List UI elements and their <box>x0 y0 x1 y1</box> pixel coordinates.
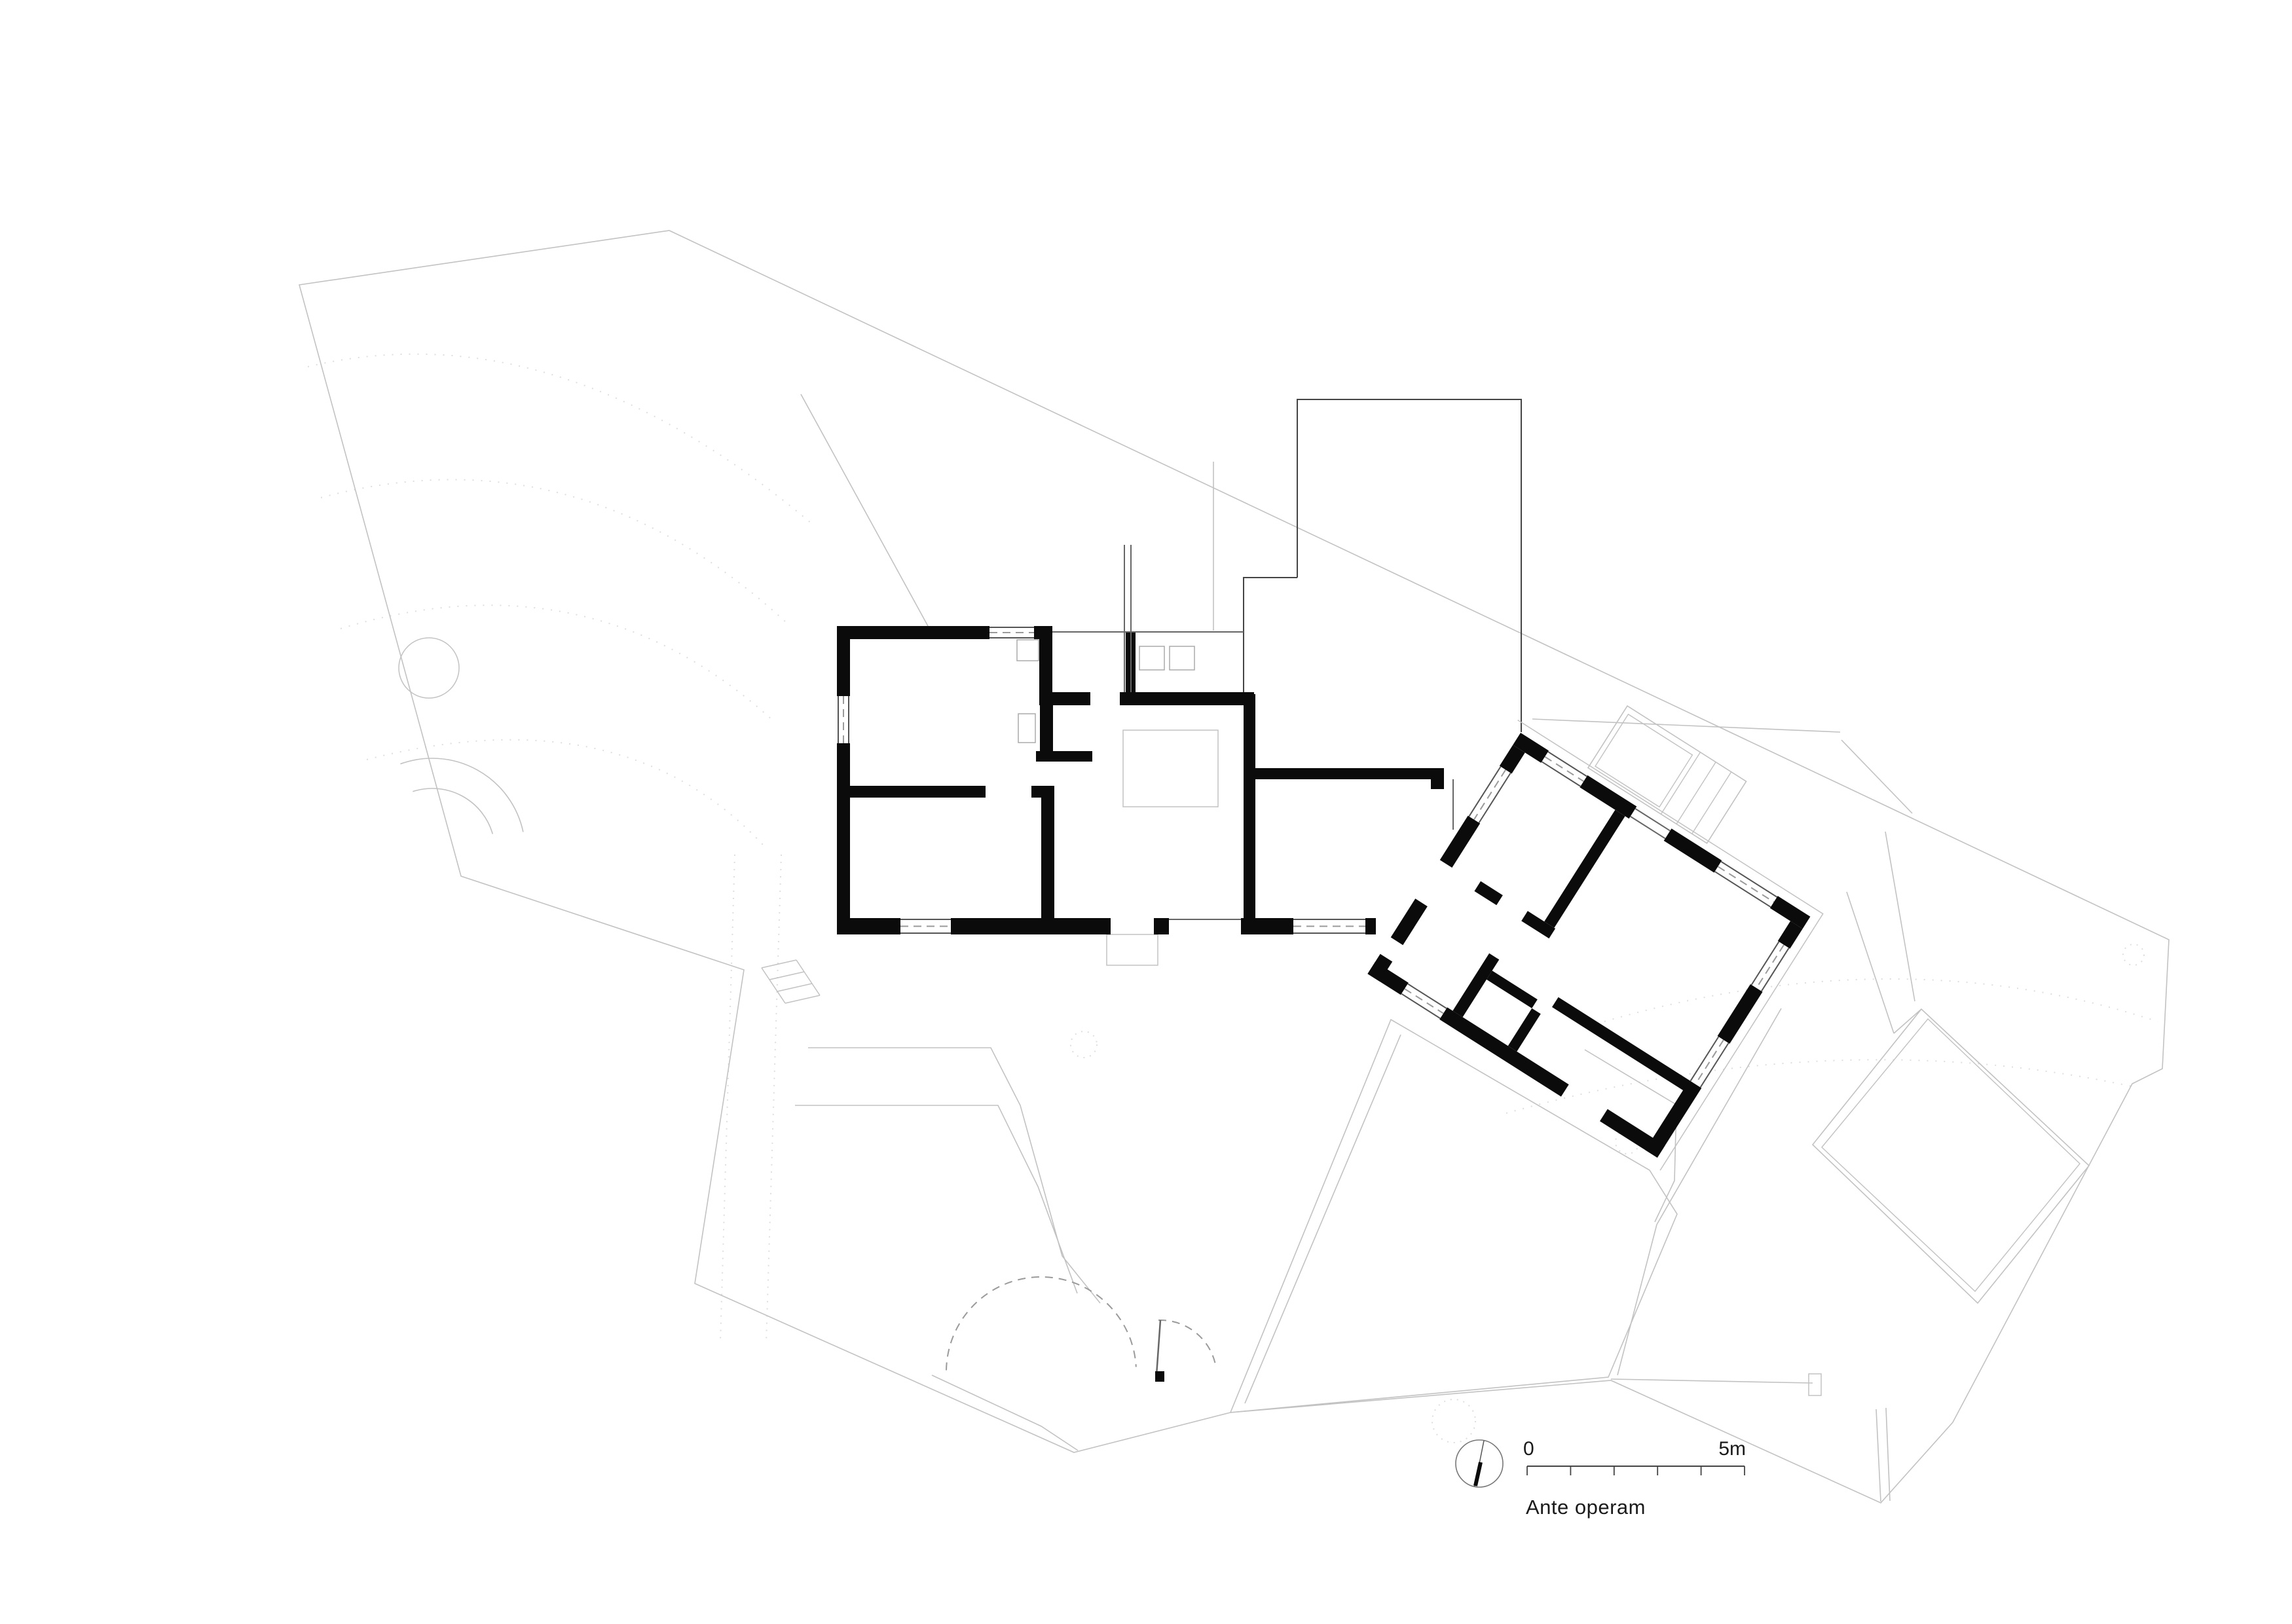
tree-circle <box>399 638 459 698</box>
paving-rect <box>1123 730 1218 807</box>
terrace-line <box>808 1048 1100 1303</box>
boundary-dotted-line <box>766 855 781 1342</box>
fixture-rect <box>1017 640 1039 661</box>
garden-stair-line <box>785 995 820 1003</box>
neighbor-layer <box>1244 399 2089 1303</box>
left-wall-segment <box>838 786 986 798</box>
neighbor-stair-tread <box>1692 772 1731 834</box>
left-wall-segment <box>1034 626 1052 639</box>
site-line <box>1611 1379 1813 1383</box>
garden-stair-line <box>762 960 796 968</box>
site-line <box>1876 1409 1881 1502</box>
gate-post <box>1155 1371 1164 1382</box>
site-line <box>1847 892 1894 1033</box>
left-wall-segment <box>1041 798 1054 918</box>
legend-text-layer: 0 5m Ante operam <box>1523 1438 1746 1519</box>
rotated-wall-segment <box>1391 898 1428 945</box>
left-wall-segment <box>837 626 989 639</box>
garden-stair-line <box>769 972 804 980</box>
right-neighbor-inner <box>1822 1019 2080 1291</box>
paving-rect <box>1809 1374 1821 1395</box>
road-arc <box>413 788 492 834</box>
gate-swing-arc <box>1158 1320 1216 1367</box>
left-wall-segment <box>1154 918 1169 934</box>
site-line <box>1886 1408 1890 1501</box>
rotated-wall-segment <box>1600 1109 1665 1158</box>
rotated-wall-segment <box>1474 881 1502 906</box>
right-neighbor-outer <box>1813 1009 2089 1303</box>
left-wall-segment <box>837 743 850 934</box>
upper-building-outline <box>1297 399 1521 732</box>
rotated-thin-line <box>1631 817 1665 839</box>
rotated-wall-segment <box>1664 828 1722 872</box>
rotated-wall-segment <box>1544 810 1625 928</box>
rotated-window-fill <box>1750 941 1790 992</box>
left-wall-segment <box>951 918 1111 934</box>
scalebar-zero-label: 0 <box>1523 1438 1534 1460</box>
site-outline <box>299 231 2169 1503</box>
floor-plan-canvas: 0 5m Ante operam <box>0 0 2292 1624</box>
left-wall-segment <box>1120 692 1254 705</box>
rotated-wall-segment <box>1440 816 1480 868</box>
rotated-wall-segment <box>1439 1007 1569 1096</box>
garden-stair-line <box>796 960 820 995</box>
left-wall-segment <box>1241 918 1293 934</box>
fixture-rect <box>1170 646 1194 670</box>
tree-circle-dotted <box>1432 1399 1475 1443</box>
garden-stair-line <box>777 984 812 991</box>
rotated-wall-segment <box>1718 984 1763 1044</box>
fixture-rect <box>1018 714 1035 743</box>
gate-swing-arc <box>946 1277 1136 1370</box>
left-wall-segment <box>1365 918 1376 934</box>
fixture-rect <box>1139 646 1164 670</box>
contour-dotted-curve <box>367 740 763 845</box>
legend-layer <box>1456 1440 1745 1487</box>
site-line <box>1885 832 1915 1001</box>
left-wall-segment <box>1039 639 1052 692</box>
paving-rect <box>1107 934 1158 965</box>
site-line <box>801 394 928 626</box>
road-arc <box>400 758 523 832</box>
north-needle-thick <box>1475 1462 1481 1486</box>
left-window-fill <box>1293 918 1365 934</box>
contour-dotted-curve <box>1506 1060 2135 1113</box>
left-wall-segment <box>1040 705 1053 751</box>
rotated-building-layer <box>1355 720 1823 1171</box>
terrace-line <box>1245 1035 1401 1403</box>
rotated-wall-segment <box>1452 953 1499 1017</box>
rotated-wall-segment <box>1487 970 1538 1008</box>
contour-dotted-curve <box>321 479 786 622</box>
left-wall-segment <box>837 918 900 934</box>
left-wall-segment <box>837 639 850 696</box>
left-wall-segment <box>1039 692 1090 705</box>
left-wall-segment <box>1431 768 1444 789</box>
terrace-line <box>932 1375 1078 1450</box>
rotated-building-group <box>1355 720 1823 1171</box>
tree-circle-dotted <box>1071 1031 1097 1058</box>
rotated-window-fill <box>1541 750 1587 787</box>
tree-circle-dotted <box>2123 944 2144 965</box>
terrace-line <box>795 1105 1077 1293</box>
plan-phase-label: Ante operam <box>1526 1496 1646 1519</box>
boundary-dotted-line <box>720 855 735 1342</box>
site-line <box>1841 740 1912 813</box>
rotated-wall-segment <box>1580 775 1636 819</box>
rotated-thin-line <box>1635 809 1670 831</box>
upper-building-outline <box>1244 578 1297 694</box>
left-wall-segment <box>1031 786 1054 798</box>
left-wall-segment <box>1244 768 1431 779</box>
scalebar-max-label: 5m <box>1718 1438 1746 1460</box>
rotated-wall-segment <box>1508 1008 1541 1052</box>
terrace-line <box>1230 1020 1677 1412</box>
rotated-wall-segment <box>1552 997 1690 1091</box>
contour-layer <box>308 354 2158 1342</box>
floor-plan-page: 0 5m Ante operam <box>0 0 2292 1624</box>
contour-dotted-curve <box>1604 979 2158 1022</box>
left-wall-segment <box>1244 694 1255 934</box>
site-layer <box>299 231 2169 1503</box>
contour-dotted-curve <box>341 605 773 720</box>
left-building-layer <box>837 545 1453 934</box>
contour-dotted-curve <box>308 354 812 524</box>
site-line <box>1894 1009 1921 1033</box>
rotated-window-fill <box>1690 1036 1729 1088</box>
neighbor-stair-tread <box>1661 752 1700 815</box>
site-line <box>1532 719 1840 732</box>
gate-leaf <box>1156 1320 1160 1375</box>
site-line <box>1617 1225 1657 1375</box>
rotated-window-fill <box>1401 983 1447 1020</box>
garden-stair-line <box>762 968 785 1003</box>
left-wall-segment <box>1036 751 1092 762</box>
